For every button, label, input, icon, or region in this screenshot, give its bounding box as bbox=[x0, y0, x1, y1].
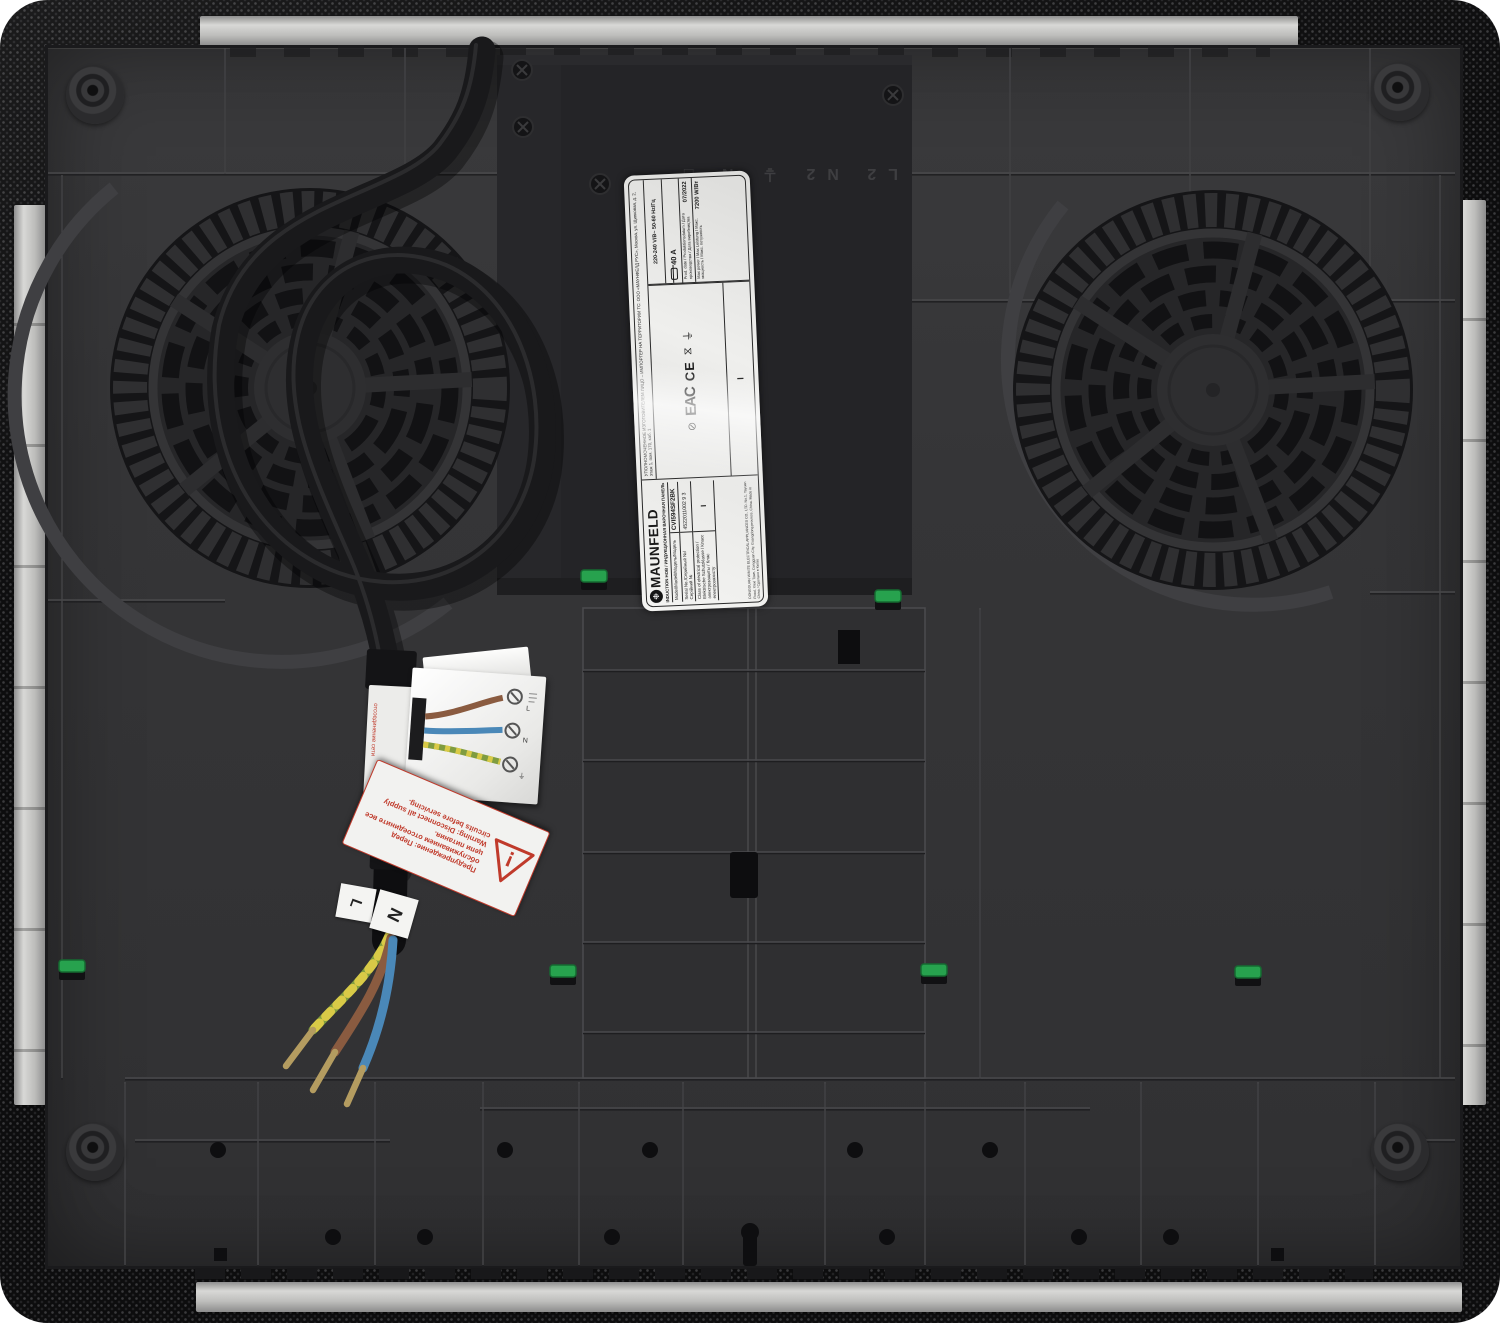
serial-value: 4522011002 9 3 bbox=[678, 481, 692, 532]
diagram-neutral-label: N bbox=[522, 737, 528, 744]
diagram-live-label: L bbox=[526, 706, 530, 713]
live-flag-letter: L bbox=[346, 896, 365, 910]
hourglass-icon: ⧖ bbox=[682, 347, 695, 355]
current-value: 40 A bbox=[668, 249, 678, 265]
label-right-block: УПОЛНОМОЧЕННОЕ ИЗГОТОВИТЕЛЕМ ЛИЦО – ИМПО… bbox=[629, 176, 758, 480]
fuse-icon bbox=[670, 268, 678, 280]
prod-date-value: 07/2022 bbox=[682, 181, 689, 202]
max-power-key: Max power / Max Leistung / Макс. мощност… bbox=[694, 212, 706, 279]
label-table: Model/Modell/Модель/Модель CVI594SF2BK S… bbox=[667, 479, 748, 602]
no-bin-icon: ⊘ bbox=[685, 422, 698, 432]
prod-date-key: Prod. date / Produktionsdatum / Дата про… bbox=[681, 205, 694, 279]
live-wire-flag: L bbox=[335, 883, 376, 923]
neutral-ferrule bbox=[347, 1068, 363, 1104]
rating-label: ❉ MAUNFELD INDUCTION HOB / ИНДУКЦИОННАЯ … bbox=[624, 170, 769, 611]
maunfeld-flame-icon: ❉ bbox=[650, 590, 664, 604]
class-key: Class of electrical protection / Elektri… bbox=[693, 531, 718, 601]
certification-marks: ⊘ EAC CE ⧖ ⏚ bbox=[648, 283, 731, 479]
electrical-specs: 220-240 V/B~ 50-60 Hz/Гц 40 A Prod. date… bbox=[644, 176, 749, 285]
neutral-flag-letter: N bbox=[382, 904, 407, 925]
max-power-value: 7200 W/Вт bbox=[694, 181, 701, 210]
live-ferrule bbox=[313, 1052, 335, 1090]
diagram-earth-label: ⏚ bbox=[518, 771, 526, 781]
earth-ferrule bbox=[286, 1030, 313, 1066]
eac-mark: EAC bbox=[681, 387, 699, 416]
ce-mark: CE bbox=[681, 361, 697, 382]
earth-symbol-icon: ⏚ bbox=[679, 330, 695, 342]
hob-underside-photo: L2 N2 ⏚ N □ отсоединение сети bbox=[0, 0, 1500, 1323]
class-value: I bbox=[691, 480, 715, 532]
warning-triangle-icon: ! bbox=[478, 836, 537, 893]
label-brand-block: ❉ MAUNFELD INDUCTION HOB / ИНДУКЦИОННАЯ … bbox=[642, 474, 763, 606]
